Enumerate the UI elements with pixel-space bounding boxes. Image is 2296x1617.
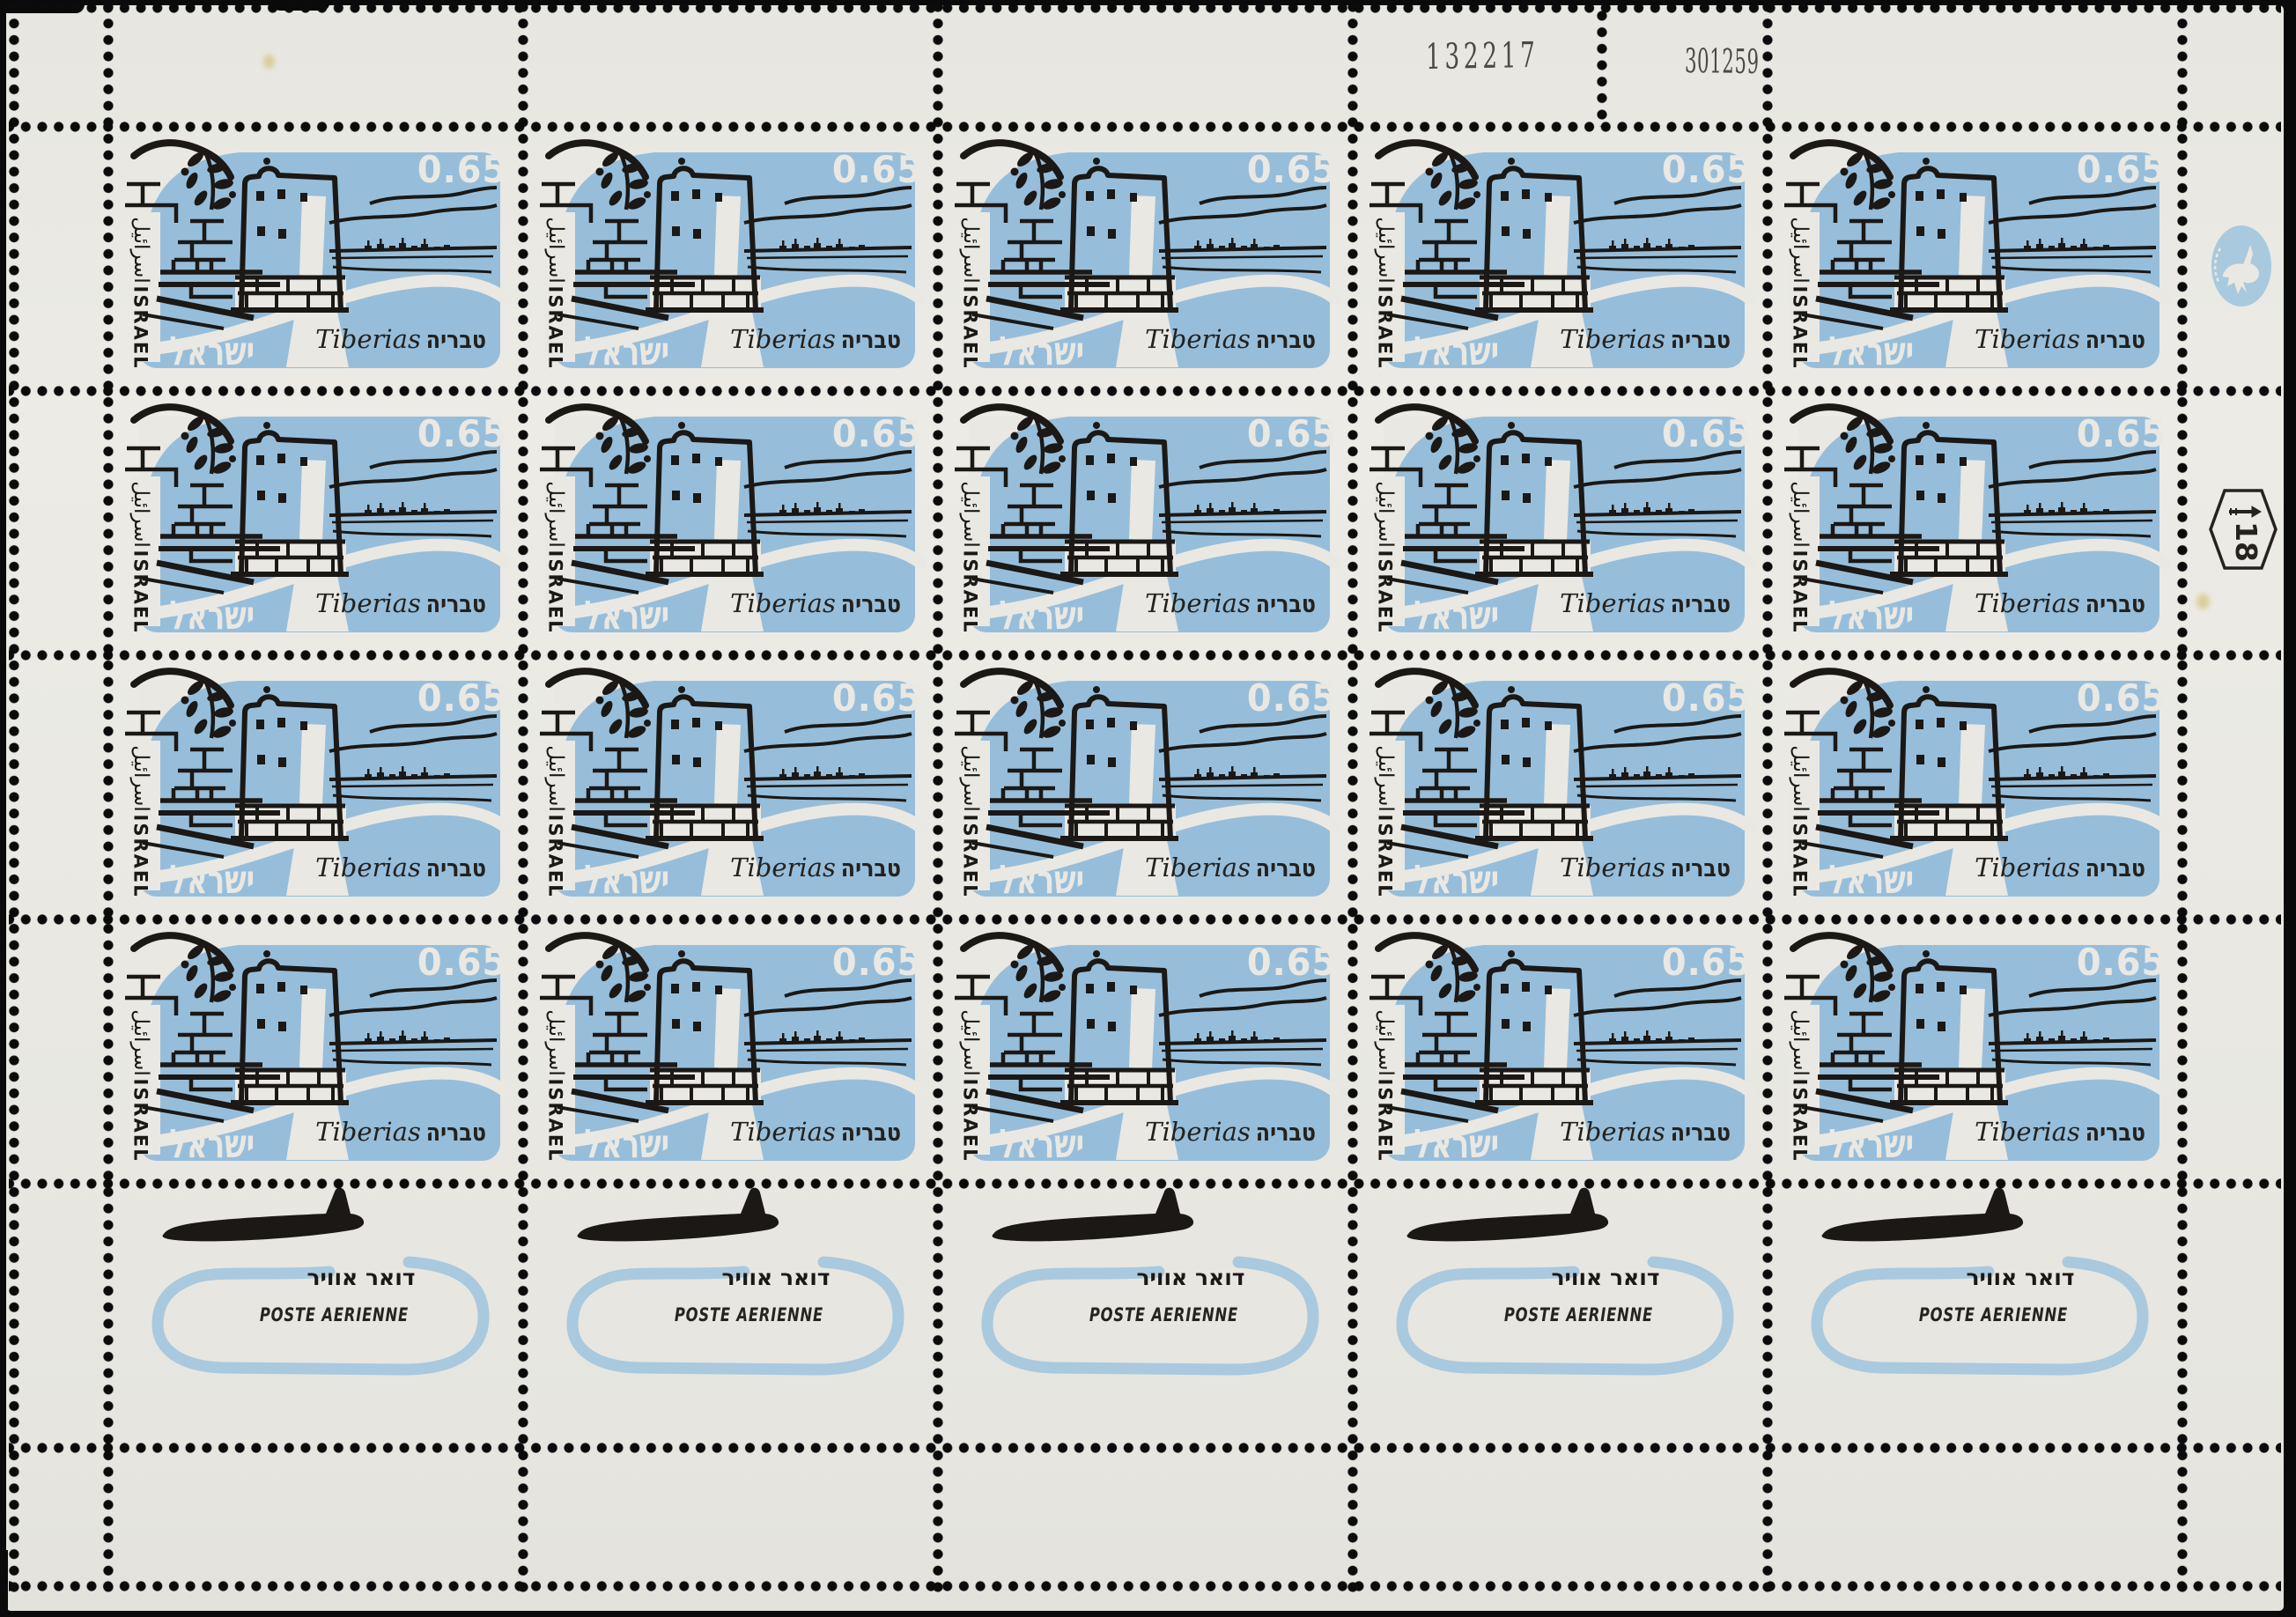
stamp-place-hebrew: טבריה [2094, 857, 2145, 882]
stamp-country-arabic: اسرائيل [543, 469, 566, 560]
stamp-sheet-scan: 132217 301259 18 0.65 اسرائيل ISRAEL [0, 0, 2296, 1617]
perforation-column [2174, 2, 2190, 1592]
stamp-country-arabic: اسرائيل [1373, 204, 1396, 296]
stamp-place-hebrew: טבריה [1265, 857, 1316, 882]
airmail-label-hebrew: דואר אוויר [1133, 1266, 1249, 1289]
stamp-country-hebrew: ישראל [1423, 1123, 1499, 1164]
stamp-place-latin: Tiberias [1133, 854, 1263, 881]
stamp-place-hebrew: טבריה [850, 593, 901, 617]
stamp-place-latin: Tiberias [1962, 1119, 2093, 1145]
stamp-country-arabic: اسرائيل [1788, 733, 1811, 824]
stamp-country-latin: ISRAEL [1790, 1079, 1809, 1163]
perforation-column [929, 2, 946, 1592]
stamp-country-arabic: اسرائيل [1788, 997, 1811, 1089]
airmail-label-french: POSTE AERIENNE [1089, 1305, 1220, 1325]
stamp-country-arabic: اسرائيل [958, 204, 981, 296]
stamp-country-hebrew: ישראל [594, 1123, 669, 1164]
stamp-denomination: 0.65 [1662, 943, 1725, 982]
stamp-country-hebrew: ישראל [1423, 330, 1499, 372]
stamp-country-arabic: اسرائيل [129, 997, 151, 1089]
stamp-country-arabic: اسرائيل [129, 469, 151, 560]
stamp-country-latin: ISRAEL [130, 550, 150, 634]
stamp: 0.65 اسرائيل ISRAEL ישראל Tiberias טבריה [1352, 654, 1767, 919]
stamp-country-latin: ISRAEL [545, 550, 565, 634]
stamp-place-latin: Tiberias [1133, 326, 1263, 352]
stamp-denomination: 0.65 [832, 679, 896, 718]
stamp-country-arabic: اسرائيل [1788, 204, 1811, 296]
stamp: 0.65 اسرائيل ISRAEL ישראל Tiberias טבריה [107, 126, 522, 390]
stamp-country-latin: ISRAEL [960, 550, 979, 634]
stamp-place-hebrew: טבריה [435, 857, 486, 882]
stamp-denomination: 0.65 [1662, 415, 1725, 454]
perforation-row [9, 0, 2281, 16]
stamp-place-hebrew: טבריה [1680, 857, 1731, 882]
sheet-date-number: 301259 [1685, 41, 1760, 81]
stamp: 0.65 اسرائيل ISRAEL ישראל Tiberias טבריה [522, 126, 937, 390]
stamp-country-latin: ISRAEL [1790, 550, 1809, 634]
stamp-country-latin: ISRAEL [130, 1079, 150, 1163]
stamp-denomination: 0.65 [2077, 151, 2140, 189]
stamp-country-latin: ISRAEL [1375, 550, 1394, 634]
stamp-country-arabic: اسرائيل [1788, 469, 1811, 560]
stamp-country-latin: ISRAEL [1790, 286, 1809, 370]
stamp-country-hebrew: ישראל [1423, 859, 1499, 900]
perforation-row [9, 1175, 2281, 1192]
stamp-place-latin: Tiberias [1547, 326, 1678, 352]
stamp-country-arabic: اسرائيل [543, 733, 566, 824]
airmail-label-hebrew: דואר אוויר [1962, 1266, 2078, 1289]
stamp-country-hebrew: ישראל [594, 330, 669, 372]
stamp-country-hebrew: ישראל [1008, 594, 1084, 636]
stamp: 0.65 اسرائيل ISRAEL ישראל Tiberias טבריה [1767, 126, 2182, 390]
stamp-country-arabic: اسرائيل [129, 733, 151, 824]
stamp-place-hebrew: טבריה [1680, 593, 1731, 617]
stamp-place-latin: Tiberias [1547, 854, 1678, 881]
perforation-row [9, 1577, 2281, 1594]
sheet-serial-number: 132217 [1426, 35, 1539, 78]
stamp-denomination: 0.65 [832, 943, 896, 982]
stamp: 0.65 اسرائيل ISRAEL ישראל Tiberias טבריה [107, 390, 522, 654]
stamp-country-arabic: اسرائيل [129, 204, 151, 296]
paper-stain [263, 55, 275, 69]
stamp-denomination: 0.65 [1662, 679, 1725, 718]
stamp-denomination: 0.65 [832, 415, 896, 454]
perforation-column [100, 2, 116, 1592]
stamp-country-arabic: اسرائيل [958, 733, 981, 824]
stamp-country-hebrew: ישראל [594, 859, 669, 900]
stamp: 0.65 اسرائيل ISRAEL ישראל Tiberias טבריה [1352, 126, 1767, 390]
stamp-country-hebrew: ישראל [1838, 330, 1914, 372]
perforation-row [9, 911, 2281, 927]
stamp-denomination: 0.65 [832, 151, 896, 189]
perforation-row [9, 646, 2281, 663]
stamp-place-latin: Tiberias [303, 326, 433, 352]
stamp: 0.65 اسرائيل ISRAEL ישראל Tiberias טבריה [522, 919, 937, 1183]
stamp: 0.65 اسرائيل ISRAEL ישראל Tiberias טבריה [1767, 654, 2182, 919]
stamp-denomination: 0.65 [2077, 415, 2140, 454]
stamp-place-latin: Tiberias [1133, 590, 1263, 617]
stamp-place-latin: Tiberias [1962, 854, 2093, 881]
stamp: 0.65 اسرائيل ISRAEL ישראל Tiberias טבריה [1352, 390, 1767, 654]
stamp-country-latin: ISRAEL [545, 286, 565, 370]
paper-stain [2196, 594, 2210, 609]
stamp-country-arabic: اسرائيل [543, 204, 566, 296]
stamp-place-hebrew: טבריה [2094, 593, 2145, 617]
stamp: 0.65 اسرائيل ISRAEL ישראל Tiberias טבריה [937, 390, 1352, 654]
stamp-denomination: 0.65 [417, 415, 481, 454]
airmail-label-french: POSTE AERIENNE [1919, 1305, 2049, 1325]
stamp-place-latin: Tiberias [718, 854, 848, 881]
airmail-label-hebrew: דואר אוויר [718, 1266, 834, 1289]
stamp-place-hebrew: טבריה [850, 857, 901, 882]
stamp: 0.65 اسرائيل ISRAEL ישראל Tiberias טבריה [107, 654, 522, 919]
stamp-country-latin: ISRAEL [1375, 815, 1394, 898]
stamp-country-arabic: اسرائيل [958, 997, 981, 1089]
stamp-country-hebrew: ישראל [1423, 594, 1499, 636]
stamp-place-hebrew: טבריה [850, 1121, 901, 1146]
airmail-label-french: POSTE AERIENNE [260, 1305, 390, 1325]
stamp-country-latin: ISRAEL [960, 286, 979, 370]
stamp-place-latin: Tiberias [1547, 1119, 1678, 1145]
stamp-country-hebrew: ישראל [1008, 330, 1084, 372]
stamp: 0.65 اسرائيل ISRAEL ישראל Tiberias טבריה [107, 919, 522, 1183]
stamp-place-hebrew: טבריה [2094, 1121, 2145, 1146]
stamp-country-latin: ISRAEL [130, 286, 150, 370]
airmail-label-french: POSTE AERIENNE [1504, 1305, 1635, 1325]
israel-postal-deer-logo [2210, 224, 2273, 308]
airmail-tab: דואר אוויר POSTE AERIENNE [1352, 1183, 1767, 1447]
airmail-tab: דואר אוויר POSTE AERIENNE [107, 1183, 522, 1447]
stamp: 0.65 اسرائيل ISRAEL ישראל Tiberias טבריה [1767, 390, 2182, 654]
stamp-country-arabic: اسرائيل [1373, 733, 1396, 824]
stamp-place-hebrew: טבריה [1680, 1121, 1731, 1146]
stamp-country-arabic: اسرائيل [543, 997, 566, 1089]
perforation-column [514, 2, 531, 1592]
stamp-place-hebrew: טבריה [435, 593, 486, 617]
stamp-country-hebrew: ישראל [594, 594, 669, 636]
stamp-place-latin: Tiberias [718, 590, 848, 617]
stamp-country-latin: ISRAEL [960, 815, 979, 898]
stamp-country-hebrew: ישראל [179, 594, 255, 636]
airmail-label-hebrew: דואר אוויר [1547, 1266, 1664, 1289]
perforation-row [9, 382, 2281, 399]
stamp-place-latin: Tiberias [1133, 1119, 1263, 1145]
stamp-denomination: 0.65 [1247, 415, 1310, 454]
plate-number-hexagon: 18 [2208, 485, 2278, 573]
stamp-denomination: 0.65 [1247, 151, 1310, 189]
arrow-right-icon [2229, 506, 2261, 517]
stamp-denomination: 0.65 [417, 151, 481, 189]
stamp-country-hebrew: ישראל [1838, 1123, 1914, 1164]
stamp-country-hebrew: ישראל [1008, 859, 1084, 900]
perforation-column [1759, 2, 1776, 1592]
stamp: 0.65 اسرائيل ISRAEL ישראל Tiberias טבריה [937, 919, 1352, 1183]
stamp-place-hebrew: טבריה [435, 329, 486, 353]
stamp-country-latin: ISRAEL [1375, 1079, 1394, 1163]
stamp-place-hebrew: טבריה [1265, 593, 1316, 617]
stamp-place-hebrew: טבריה [1265, 329, 1316, 353]
stamp-place-latin: Tiberias [303, 1119, 433, 1145]
sheet-paper: 132217 301259 18 0.65 اسرائيل ISRAEL [6, 5, 2284, 1611]
stamp-country-arabic: اسرائيل [1373, 469, 1396, 560]
stamp-place-latin: Tiberias [718, 326, 848, 352]
stamp-place-latin: Tiberias [303, 854, 433, 881]
airmail-tab: דואר אוויר POSTE AERIENNE [937, 1183, 1352, 1447]
stamp-country-latin: ISRAEL [1790, 815, 1809, 898]
perforation-column-segment [1593, 4, 1610, 127]
stamp-country-hebrew: ישראל [179, 1123, 255, 1164]
stamp: 0.65 اسرائيل ISRAEL ישראל Tiberias טבריה [1767, 919, 2182, 1183]
stamp-place-hebrew: טבריה [850, 329, 901, 353]
plate-number: 18 [2229, 521, 2263, 562]
perforation-column [5, 2, 22, 1592]
stamp: 0.65 اسرائيل ISRAEL ישראל Tiberias טבריה [937, 126, 1352, 390]
stamp-country-hebrew: ישראל [179, 330, 255, 372]
stamp-country-latin: ISRAEL [545, 1079, 565, 1163]
stamp-country-hebrew: ישראל [1838, 594, 1914, 636]
perforation-row [9, 118, 2281, 135]
stamp-country-hebrew: ישראל [1008, 1123, 1084, 1164]
stamp-place-hebrew: טבריה [1265, 1121, 1316, 1146]
stamp: 0.65 اسرائيل ISRAEL ישראל Tiberias טבריה [937, 654, 1352, 919]
stamp-place-latin: Tiberias [1547, 590, 1678, 617]
stamp-country-latin: ISRAEL [130, 815, 150, 898]
stamp-country-arabic: اسرائيل [958, 469, 981, 560]
stamp: 0.65 اسرائيل ISRAEL ישראל Tiberias טבריה [1352, 919, 1767, 1183]
stamp-place-hebrew: טבריה [1680, 329, 1731, 353]
stamp-denomination: 0.65 [2077, 679, 2140, 718]
stamp-place-latin: Tiberias [718, 1119, 848, 1145]
airmail-tab: דואר אוויר POSTE AERIENNE [1767, 1183, 2182, 1447]
stamp-denomination: 0.65 [1247, 943, 1310, 982]
stamp-denomination: 0.65 [2077, 943, 2140, 982]
stamp-place-latin: Tiberias [1962, 326, 2093, 352]
stamp: 0.65 اسرائيل ISRAEL ישראל Tiberias טבריה [522, 654, 937, 919]
stamp-place-latin: Tiberias [303, 590, 433, 617]
stamp-denomination: 0.65 [1662, 151, 1725, 189]
stamp-country-latin: ISRAEL [545, 815, 565, 898]
stamp-country-arabic: اسرائيل [1373, 997, 1396, 1089]
stamp-place-hebrew: טבריה [2094, 329, 2145, 353]
stamp-denomination: 0.65 [417, 943, 481, 982]
airmail-tab: דואר אוויר POSTE AERIENNE [522, 1183, 937, 1447]
airmail-label-hebrew: דואר אוויר [303, 1266, 419, 1289]
stamp-place-hebrew: טבריה [435, 1121, 486, 1146]
stamp-country-hebrew: ישראל [179, 859, 255, 900]
stamp-denomination: 0.65 [1247, 679, 1310, 718]
airmail-label-french: POSTE AERIENNE [675, 1305, 805, 1325]
stamp: 0.65 اسرائيل ISRAEL ישראל Tiberias טבריה [522, 390, 937, 654]
stamp-place-latin: Tiberias [1962, 590, 2093, 617]
stamp-country-latin: ISRAEL [960, 1079, 979, 1163]
stamp-denomination: 0.65 [417, 679, 481, 718]
stamp-country-latin: ISRAEL [1375, 286, 1394, 370]
perforation-column [1344, 2, 1361, 1592]
stamp-country-hebrew: ישראל [1838, 859, 1914, 900]
perforation-row [9, 1439, 2281, 1456]
